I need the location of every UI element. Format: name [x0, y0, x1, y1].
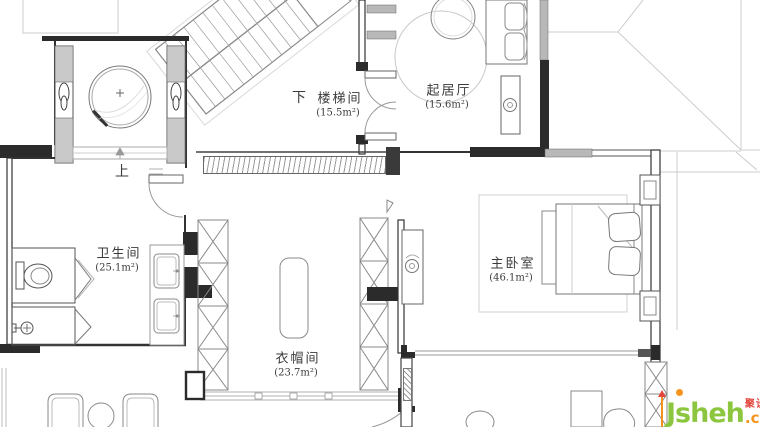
room-area-cloakroom: (23.7m²): [274, 368, 318, 379]
folding-door-icon: [75, 258, 91, 300]
chair-icon: [604, 409, 635, 427]
clothes-rail: [203, 156, 386, 174]
logo-text: sheh: [675, 400, 744, 427]
logo-dot-icon: [676, 389, 683, 396]
desk-icon: [571, 391, 602, 427]
stair-down-label: 下: [292, 87, 306, 107]
window-band: [200, 392, 398, 400]
logo-pole: [661, 394, 663, 427]
round-bathtub-icon: [89, 66, 151, 128]
balcony: [2, 368, 158, 427]
wall-hatch: [403, 368, 412, 401]
nightstand-icon: [640, 291, 660, 321]
cabinet-icon: [501, 76, 520, 134]
bath-alcove: [42, 36, 189, 168]
cloakroom: [186, 147, 415, 427]
logo-tld: .com: [745, 411, 760, 426]
dresser-icon: [402, 230, 423, 304]
up-arrow-icon: [116, 148, 124, 159]
logo-tail: 聚设汇 .com: [745, 400, 760, 427]
floor-plan-drawing: [0, 0, 760, 427]
wardrobe-right: [360, 218, 388, 390]
room-name-master-bedroom: 主卧室: [490, 253, 535, 272]
folding-door-icon: [75, 309, 91, 344]
double-door-icon: [365, 71, 396, 140]
room-area-staircase: (15.5m²): [316, 108, 360, 119]
side-table-icon: [88, 403, 114, 427]
toilet-icon: [16, 262, 52, 289]
door-icon: [149, 169, 183, 217]
room-area-bathroom: (25.1m²): [95, 263, 139, 274]
chair-icon: [123, 394, 158, 427]
nightstand-icon: [640, 175, 660, 205]
room-name-staircase: 楼梯间: [317, 88, 362, 107]
wardrobe-left: [198, 220, 228, 390]
terrace: [401, 358, 667, 427]
room-area-master-bedroom: (46.1m²): [489, 273, 533, 284]
room-name-living: 起居厅: [426, 80, 471, 99]
bed-icon: [556, 204, 642, 294]
chair-icon: [466, 411, 494, 427]
room-name-cloakroom: 衣帽间: [275, 348, 320, 367]
logo-pole-tip-icon: [658, 390, 666, 397]
watermark-logo: J sheh 聚设汇 .com: [652, 390, 760, 427]
shower-icon: [12, 322, 33, 334]
room-name-bathroom: 卫生间: [96, 243, 141, 262]
island-cabinet: [280, 258, 308, 338]
floor-plan: 下 楼梯间 (15.5m²) 起居厅 (15.6m²) 卫生间 (25.1m²)…: [0, 0, 760, 427]
stair-up-label: 上: [115, 161, 129, 181]
living-room: [356, 0, 549, 154]
chair-icon: [48, 394, 83, 427]
room-area-living: (15.6m²): [425, 100, 469, 111]
sofa-icon: [486, 0, 527, 64]
logo-letter-j: J: [666, 400, 675, 427]
